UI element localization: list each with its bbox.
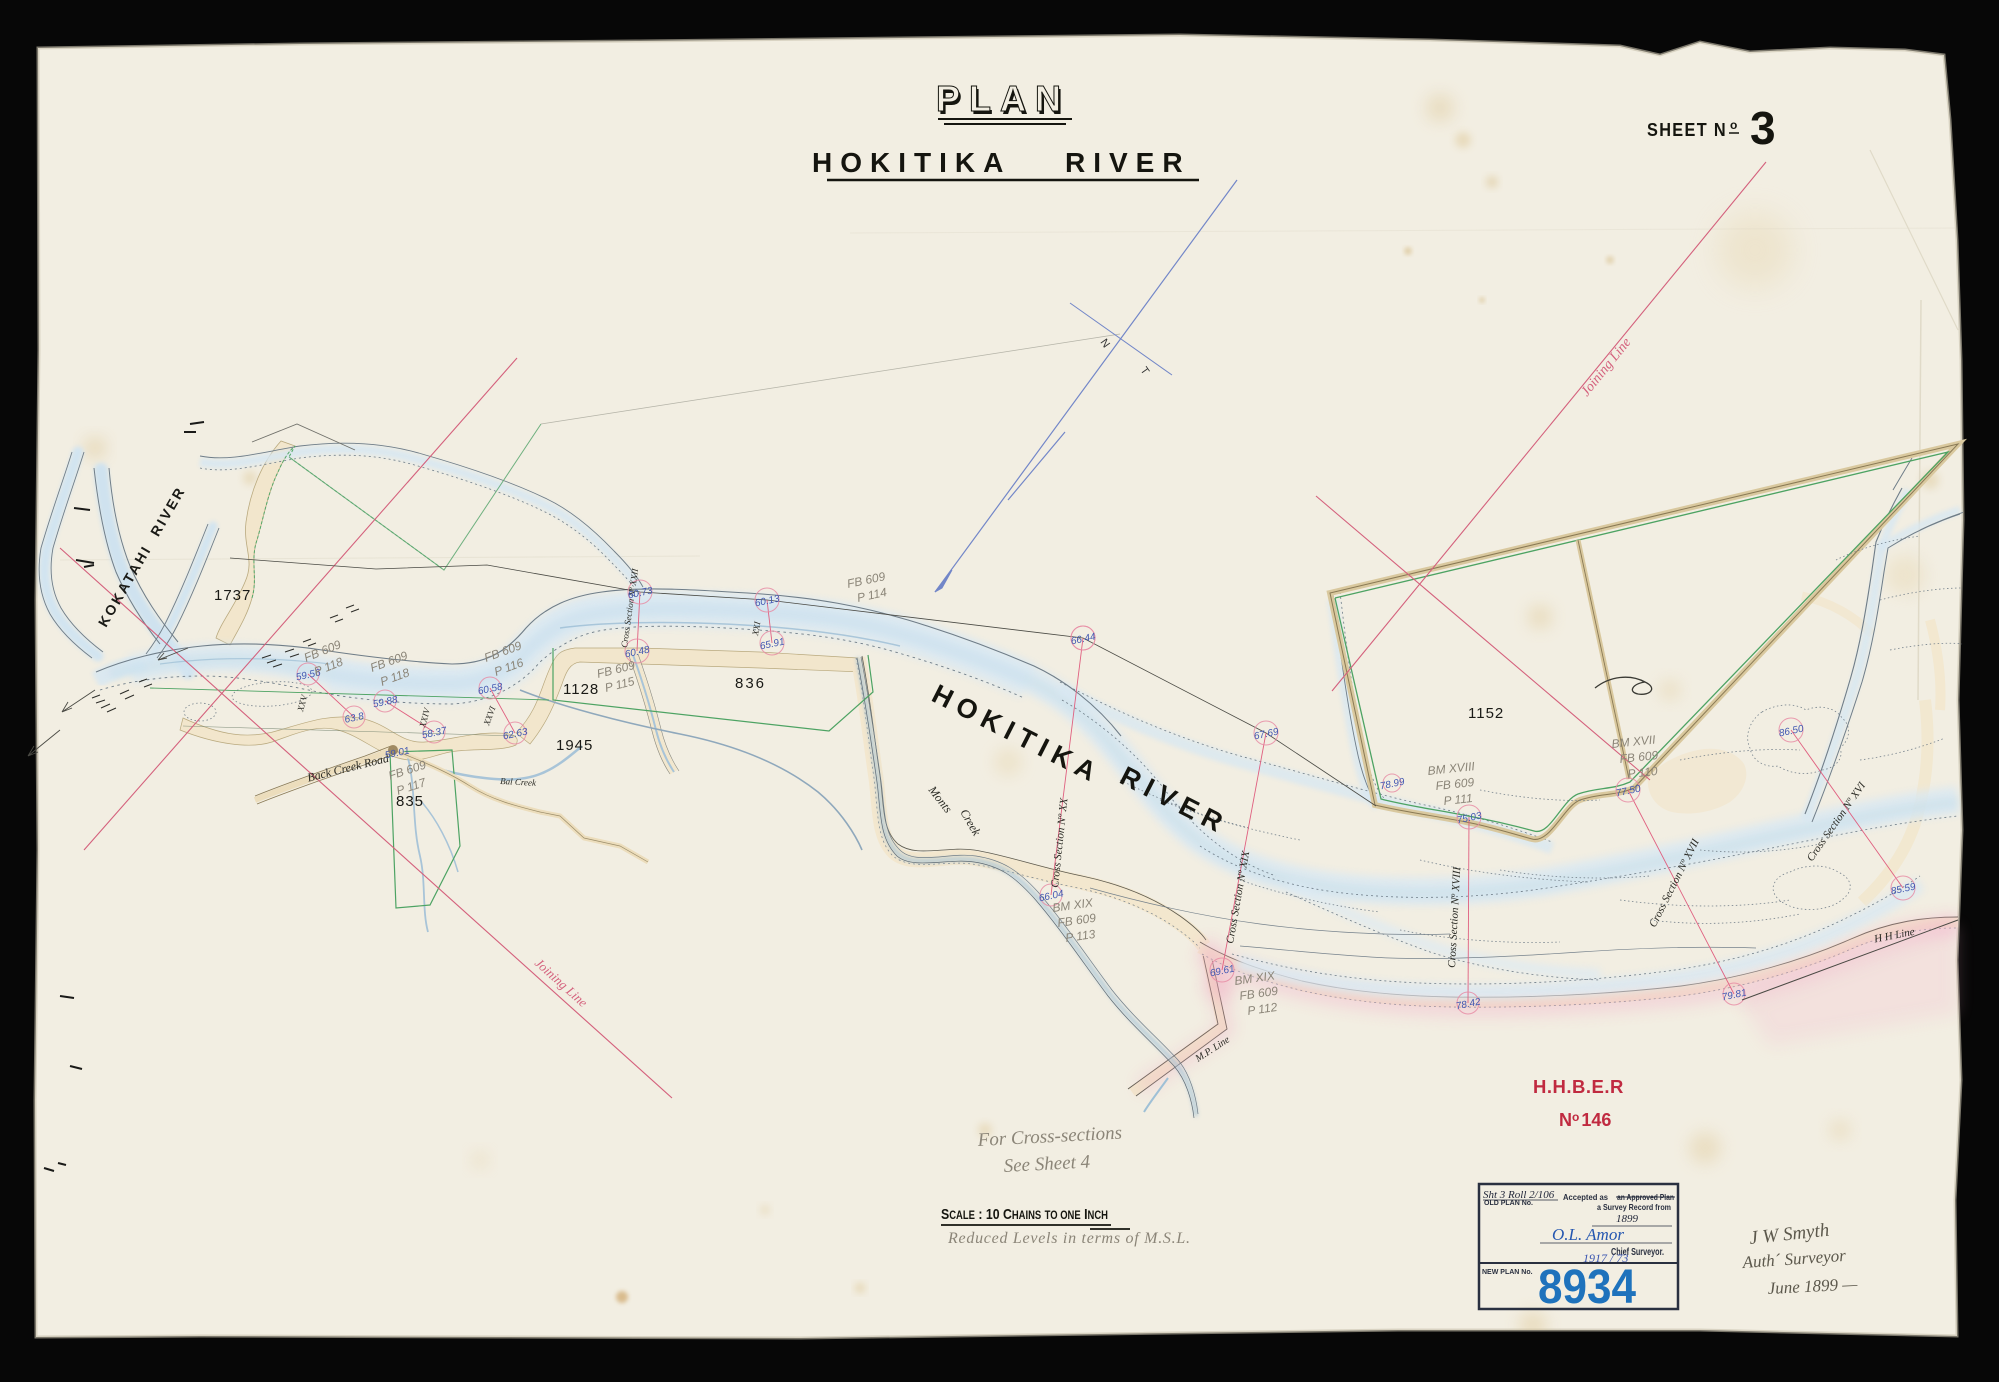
svg-text:H.H.B.E.R: H.H.B.E.R <box>1533 1076 1624 1097</box>
svg-text:Bal Creek: Bal Creek <box>500 776 537 788</box>
svg-text:No146: No146 <box>1559 1110 1611 1130</box>
svg-text:1128: 1128 <box>563 681 599 698</box>
svg-text:NEW PLAN No.: NEW PLAN No. <box>1482 1269 1533 1276</box>
svg-text:Sht 3 Roll 2/106: Sht 3 Roll 2/106 <box>1483 1189 1555 1201</box>
svg-text:836: 836 <box>735 675 766 692</box>
svg-text:OLD PLAN No.: OLD PLAN No. <box>1484 1200 1533 1207</box>
svg-text:PLAN: PLAN <box>936 78 1070 119</box>
svg-text:3: 3 <box>1750 102 1776 154</box>
svg-text:1152: 1152 <box>1468 705 1504 722</box>
svg-text:o: o <box>1730 118 1737 132</box>
svg-text:Reduced Levels in terms of M.S: Reduced Levels in terms of M.S.L. <box>947 1230 1190 1247</box>
svg-text:1737: 1737 <box>214 587 251 604</box>
svg-text:1945: 1945 <box>556 737 593 754</box>
svg-text:Accepted as: Accepted as <box>1563 1192 1608 1202</box>
svg-text:HOKITIKA: HOKITIKA <box>812 147 1011 178</box>
svg-text:O.L. Amor: O.L. Amor <box>1552 1225 1624 1244</box>
svg-text:SHEET N: SHEET N <box>1647 120 1727 140</box>
svg-text:a Survey Record from: a Survey Record from <box>1597 1202 1671 1212</box>
svg-text:8934: 8934 <box>1538 1261 1636 1314</box>
svg-text:RIVER: RIVER <box>1065 147 1191 178</box>
svg-text:1899: 1899 <box>1616 1213 1639 1225</box>
